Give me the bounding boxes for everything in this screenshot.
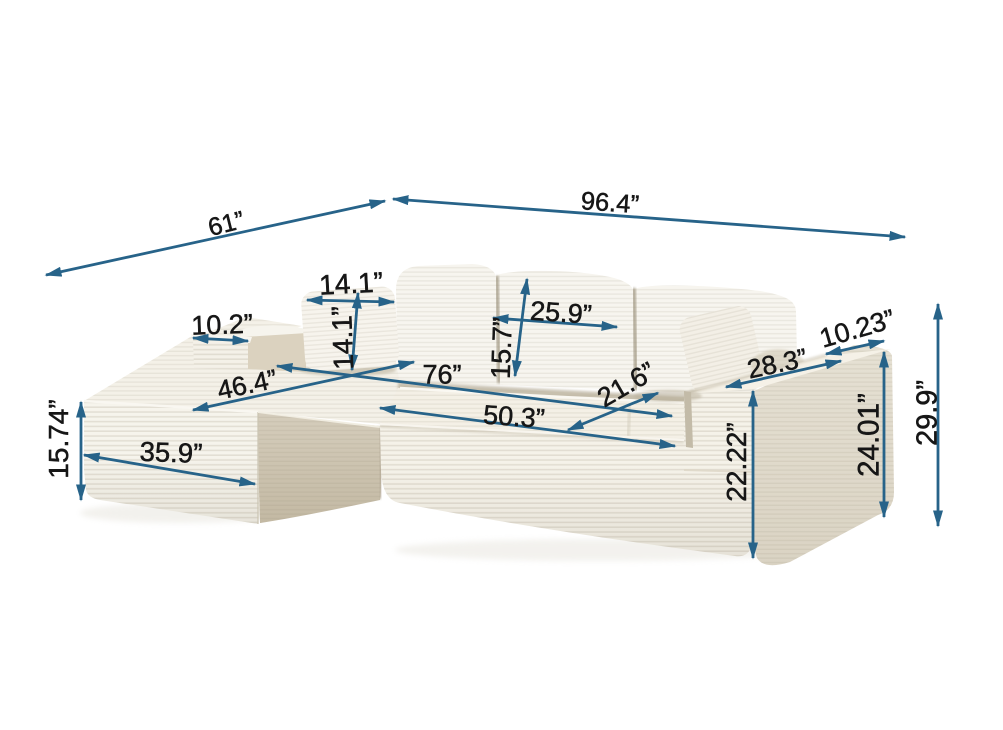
svg-text:50.3”: 50.3” bbox=[482, 400, 545, 434]
svg-text:96.4”: 96.4” bbox=[580, 187, 640, 219]
svg-text:10.2”: 10.2” bbox=[191, 309, 254, 341]
svg-text:29.9”: 29.9” bbox=[911, 380, 943, 446]
svg-text:35.9”: 35.9” bbox=[139, 436, 203, 469]
svg-text:14.1”: 14.1” bbox=[318, 266, 383, 300]
svg-text:15.7”: 15.7” bbox=[486, 317, 518, 380]
svg-text:76”: 76” bbox=[422, 360, 461, 390]
svg-text:25.9”: 25.9” bbox=[529, 296, 592, 330]
svg-text:22.22”: 22.22” bbox=[721, 422, 752, 501]
svg-text:14.1”: 14.1” bbox=[326, 306, 359, 371]
svg-text:15.74”: 15.74” bbox=[43, 399, 74, 478]
svg-text:24.01”: 24.01” bbox=[853, 393, 886, 477]
